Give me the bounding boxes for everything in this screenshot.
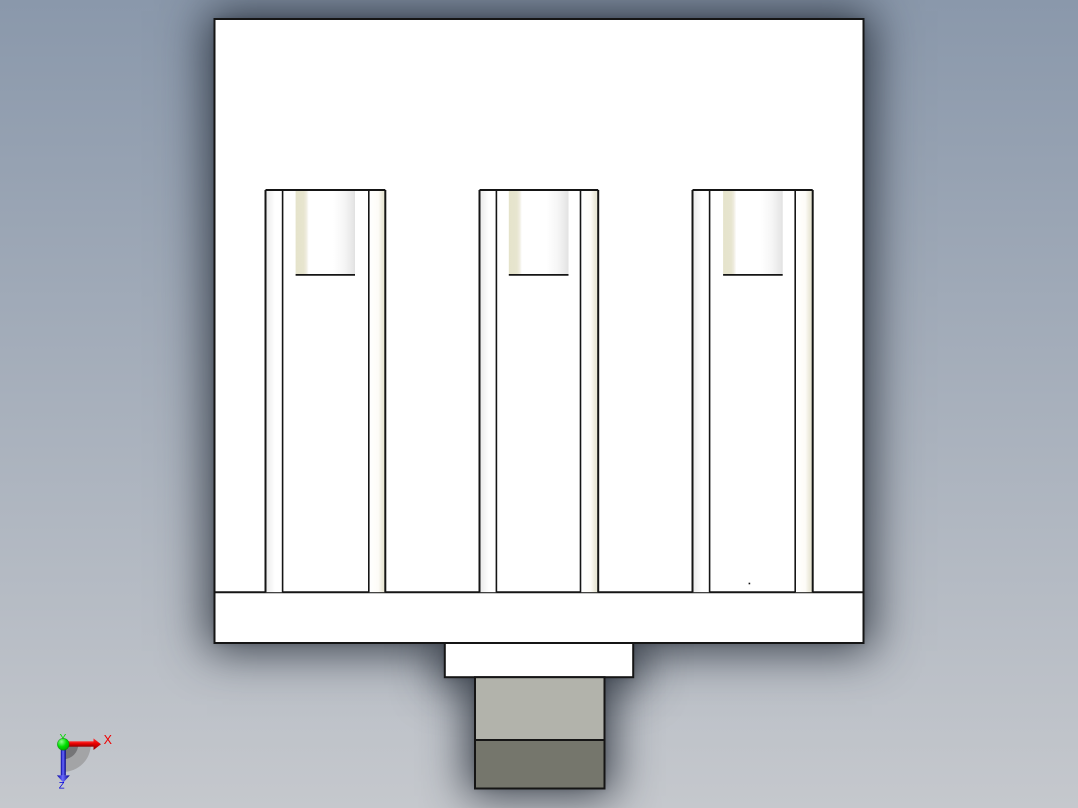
svg-text:X: X — [104, 733, 113, 747]
svg-text:Z: Z — [59, 780, 65, 791]
